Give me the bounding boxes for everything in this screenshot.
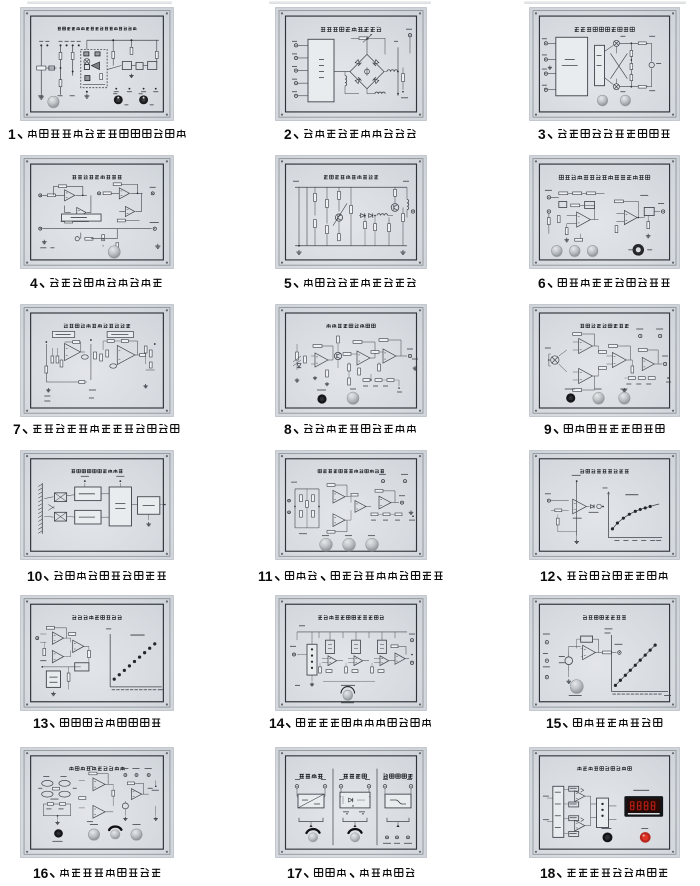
svg-text:3: 3 (538, 127, 546, 142)
svg-text:18: 18 (540, 866, 556, 881)
svg-text:10: 10 (27, 569, 43, 584)
svg-text:16: 16 (33, 866, 49, 881)
svg-text:9: 9 (544, 422, 552, 437)
svg-text:8: 8 (284, 422, 292, 437)
svg-text:7: 7 (13, 422, 21, 437)
svg-text:11: 11 (258, 569, 273, 584)
svg-text:4: 4 (30, 276, 38, 291)
svg-text:13: 13 (33, 716, 49, 731)
svg-text:1: 1 (8, 127, 16, 142)
svg-text:14: 14 (269, 716, 285, 731)
svg-text:15: 15 (546, 716, 562, 731)
svg-text:6: 6 (538, 276, 546, 291)
svg-text:17: 17 (287, 866, 303, 881)
svg-text:2: 2 (284, 127, 292, 142)
svg-text:5: 5 (284, 276, 292, 291)
svg-text:12: 12 (540, 569, 556, 584)
